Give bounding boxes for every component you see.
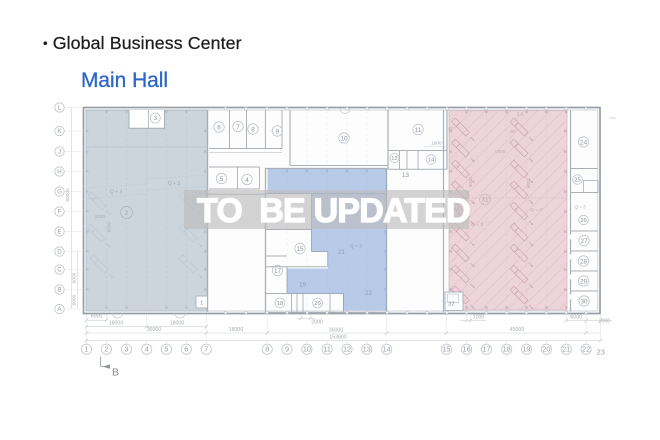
svg-text:2000: 2000 [311, 319, 323, 325]
svg-text:6000: 6000 [570, 315, 582, 321]
svg-text:1: 1 [84, 345, 88, 354]
svg-text:8: 8 [251, 126, 255, 133]
svg-text:153600: 153600 [329, 335, 346, 341]
svg-text:21: 21 [562, 345, 570, 354]
svg-text:11: 11 [323, 345, 331, 354]
svg-text:45000: 45000 [510, 327, 525, 333]
svg-text:6000: 6000 [91, 313, 103, 319]
svg-text:E: E [57, 229, 61, 236]
svg-text:14: 14 [428, 158, 435, 164]
svg-text:8: 8 [265, 345, 269, 354]
svg-text:29: 29 [580, 278, 588, 285]
svg-text:B: B [112, 367, 119, 379]
svg-text:19: 19 [522, 345, 530, 354]
svg-text:16: 16 [463, 345, 471, 354]
svg-text:20: 20 [314, 301, 320, 307]
svg-text:F: F [58, 209, 62, 216]
svg-text:1000: 1000 [473, 315, 485, 321]
svg-text:17: 17 [274, 268, 282, 275]
svg-text:22: 22 [582, 345, 590, 354]
svg-text:26: 26 [580, 218, 586, 224]
svg-text:J: J [58, 149, 61, 156]
svg-text:H: H [57, 169, 61, 176]
svg-text:1: 1 [200, 300, 203, 306]
svg-text:20: 20 [542, 345, 550, 354]
svg-text:10: 10 [340, 135, 348, 142]
svg-text:4: 4 [145, 345, 149, 354]
svg-text:7: 7 [236, 124, 240, 131]
svg-text:5: 5 [164, 345, 168, 354]
svg-text:60000: 60000 [65, 188, 71, 202]
svg-text:12: 12 [391, 156, 397, 162]
svg-text:11: 11 [415, 127, 422, 134]
svg-text:7: 7 [204, 345, 208, 354]
svg-text:17: 17 [482, 345, 490, 354]
svg-text:32: 32 [448, 302, 454, 308]
svg-text:9: 9 [285, 345, 289, 354]
svg-text:6: 6 [184, 345, 188, 354]
svg-text:2: 2 [104, 345, 108, 354]
svg-text:5: 5 [220, 176, 224, 183]
svg-text:36000: 36000 [329, 328, 344, 334]
svg-text:36000: 36000 [147, 327, 162, 333]
svg-text:Q = 3: Q = 3 [574, 205, 586, 210]
svg-text:14: 14 [383, 345, 391, 354]
svg-text:13: 13 [363, 345, 371, 354]
svg-text:27: 27 [580, 238, 588, 245]
svg-text:18000: 18000 [109, 321, 124, 327]
svg-text:28: 28 [580, 258, 588, 265]
svg-text:18: 18 [277, 301, 283, 307]
svg-text:23: 23 [596, 348, 604, 357]
svg-text:1900: 1900 [431, 141, 442, 146]
svg-text:30: 30 [580, 298, 588, 305]
svg-text:G: G [57, 189, 62, 196]
svg-text:6: 6 [217, 124, 221, 131]
svg-text:D: D [57, 249, 62, 256]
svg-text:6000: 6000 [72, 272, 78, 283]
svg-text:C: C [57, 267, 62, 274]
svg-text:12: 12 [343, 345, 351, 354]
svg-text:3: 3 [124, 345, 128, 354]
svg-text:3: 3 [154, 115, 158, 122]
svg-text:15: 15 [296, 246, 304, 253]
svg-text:24: 24 [580, 139, 588, 146]
svg-text:B: B [57, 287, 61, 294]
svg-text:6000: 6000 [72, 294, 78, 305]
svg-text:18: 18 [503, 345, 511, 354]
svg-text:4: 4 [245, 177, 249, 184]
svg-text:18000: 18000 [229, 327, 244, 333]
svg-text:L: L [58, 105, 62, 112]
svg-text:18000: 18000 [170, 321, 185, 327]
svg-text:10: 10 [303, 345, 311, 354]
svg-text:15: 15 [442, 345, 450, 354]
svg-text:9: 9 [276, 128, 280, 135]
svg-text:25: 25 [574, 178, 580, 184]
svg-text:13: 13 [402, 172, 409, 179]
